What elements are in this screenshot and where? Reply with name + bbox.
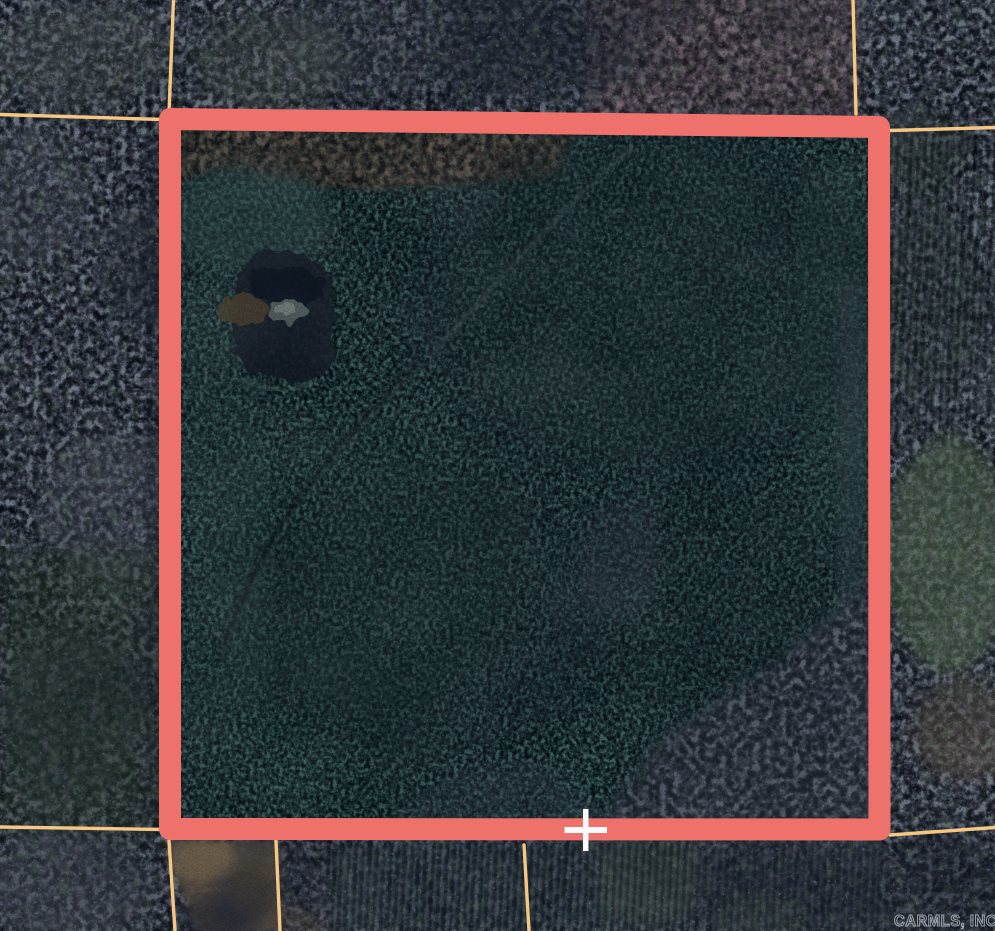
- svg-text:CARMLS, INC: CARMLS, INC: [894, 913, 995, 930]
